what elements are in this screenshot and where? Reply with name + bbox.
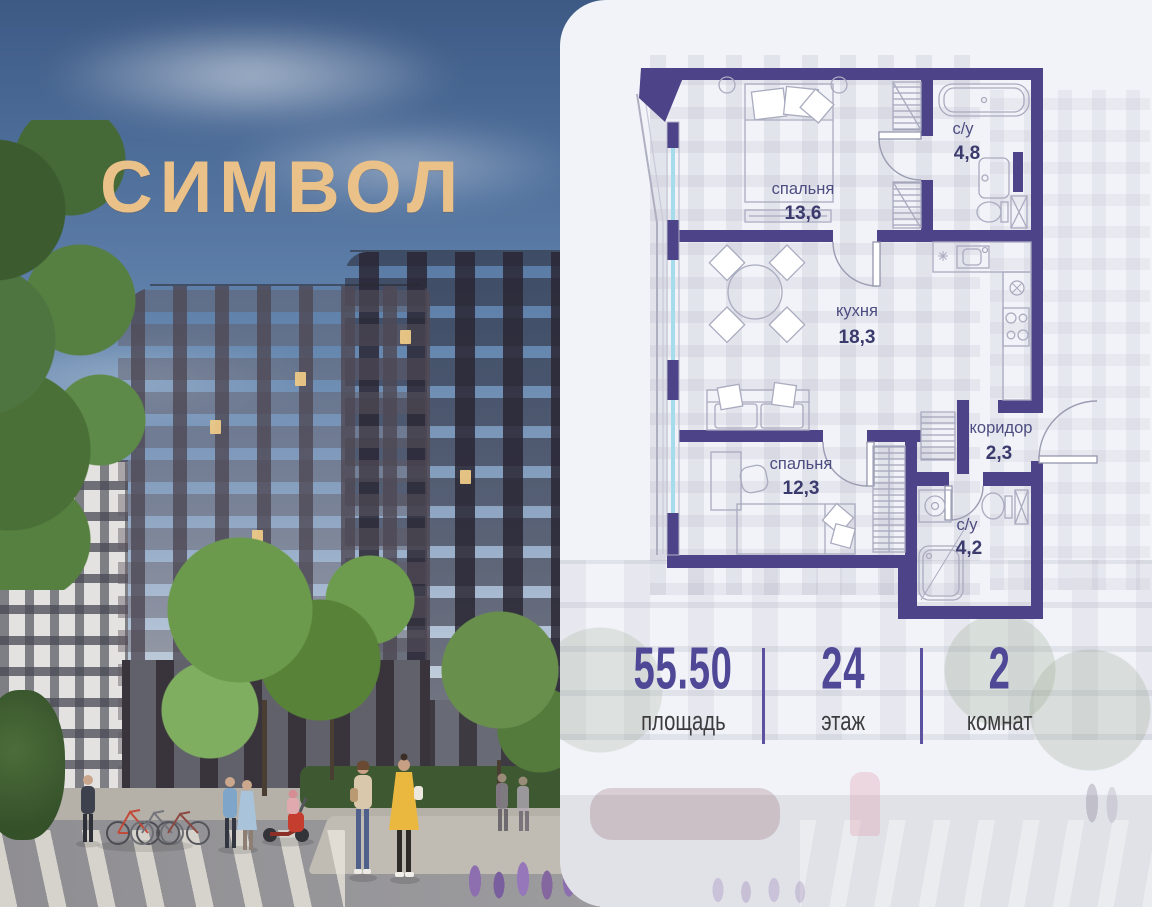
room-label-bedroom2: спальня (770, 455, 833, 473)
stat-rooms-label: комнат (967, 708, 1033, 735)
distant-pedestrians (496, 774, 529, 832)
ghost-flowers (700, 868, 820, 907)
stat-floor-value: 24 (821, 639, 865, 698)
room-label-bath2: с/у (956, 516, 978, 534)
roof-line (350, 250, 573, 252)
couple-walking (218, 777, 258, 854)
person-beige (349, 761, 377, 882)
apartment-stats: 55.50 площадь 24 этаж 2 комнат (603, 640, 1079, 760)
floor-plan: спальня 13,6 с/у 4,8 кухня 18,3 коридор … (627, 60, 1107, 635)
balcony-glazing (637, 91, 663, 555)
stat-area-value: 55.50 (633, 639, 732, 698)
room-label-kitchen: кухня (836, 302, 878, 320)
person-standing (76, 775, 100, 848)
stat-floor-label: этаж (821, 708, 865, 735)
ghost-pedestrian (850, 772, 880, 836)
ghost-car (590, 788, 780, 840)
room-area-kitchen: 18,3 (839, 327, 876, 348)
window-glass (667, 122, 679, 555)
stat-rooms: 2 комнат (921, 640, 1079, 735)
room-area-corridor: 2,3 (986, 443, 1012, 464)
room-label-bedroom1: спальня (772, 180, 835, 198)
corridor-wardrobe (921, 412, 955, 460)
listing-card: СИМВОЛ (0, 0, 1152, 907)
ghost-pedestrians (1080, 765, 1126, 835)
parked-bicycles-icon (97, 810, 209, 852)
room-area-bedroom2: 12,3 (783, 478, 820, 499)
room-area-bath1: 4,8 (954, 143, 980, 164)
lit-window (460, 470, 471, 484)
red-scooter-icon (262, 790, 314, 847)
room-area-bedroom1: 13,6 (785, 203, 822, 224)
room-label-corridor: коридор (970, 419, 1033, 437)
cloud (40, 20, 460, 130)
lit-window (295, 372, 306, 386)
lit-window (400, 330, 411, 344)
stat-area: 55.50 площадь (603, 640, 763, 735)
stat-rooms-value: 2 (989, 639, 1011, 698)
room-area-bath2: 4,2 (956, 538, 982, 559)
brand-logo: СИМВОЛ (100, 146, 500, 229)
room-label-bath1: с/у (952, 120, 974, 138)
person-yellow-dress (389, 754, 423, 885)
info-panel: спальня 13,6 с/у 4,8 кухня 18,3 коридор … (560, 0, 1152, 907)
stat-area-label: площадь (641, 708, 726, 735)
stat-floor: 24 этаж (763, 640, 923, 735)
